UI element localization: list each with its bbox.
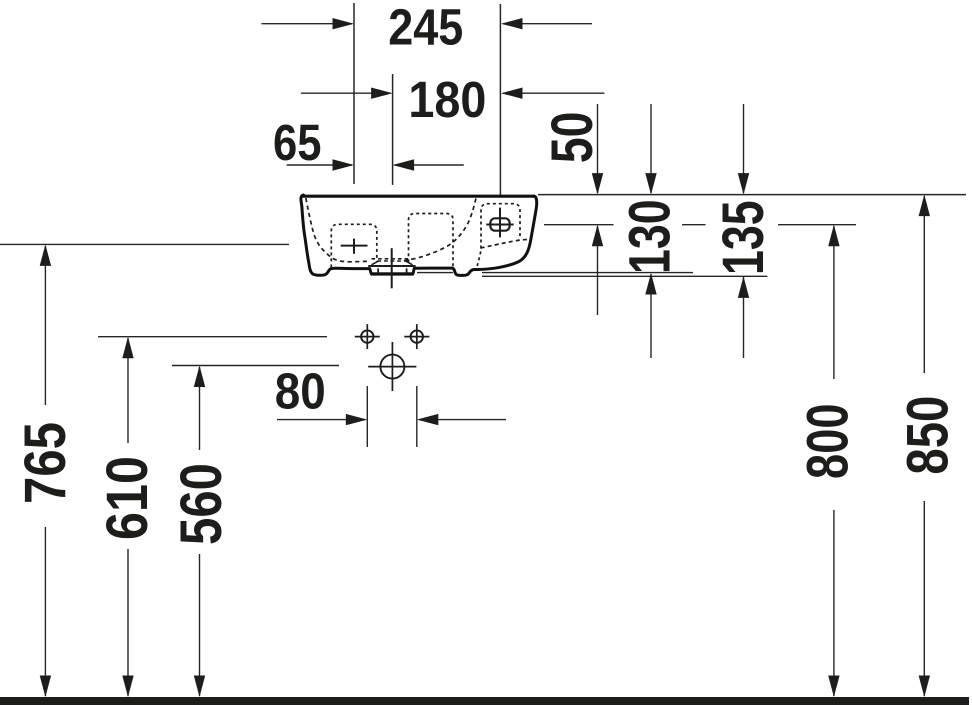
svg-text:560: 560 [169,463,234,545]
svg-text:610: 610 [95,456,160,540]
svg-text:130: 130 [617,199,682,274]
svg-text:80: 80 [275,363,326,420]
svg-text:245: 245 [388,0,463,55]
svg-text:180: 180 [408,71,486,128]
svg-text:65: 65 [273,114,322,171]
svg-text:50: 50 [540,112,605,164]
svg-text:800: 800 [796,403,861,479]
svg-text:765: 765 [13,422,78,504]
svg-text:850: 850 [896,396,961,475]
svg-text:135: 135 [711,200,776,275]
